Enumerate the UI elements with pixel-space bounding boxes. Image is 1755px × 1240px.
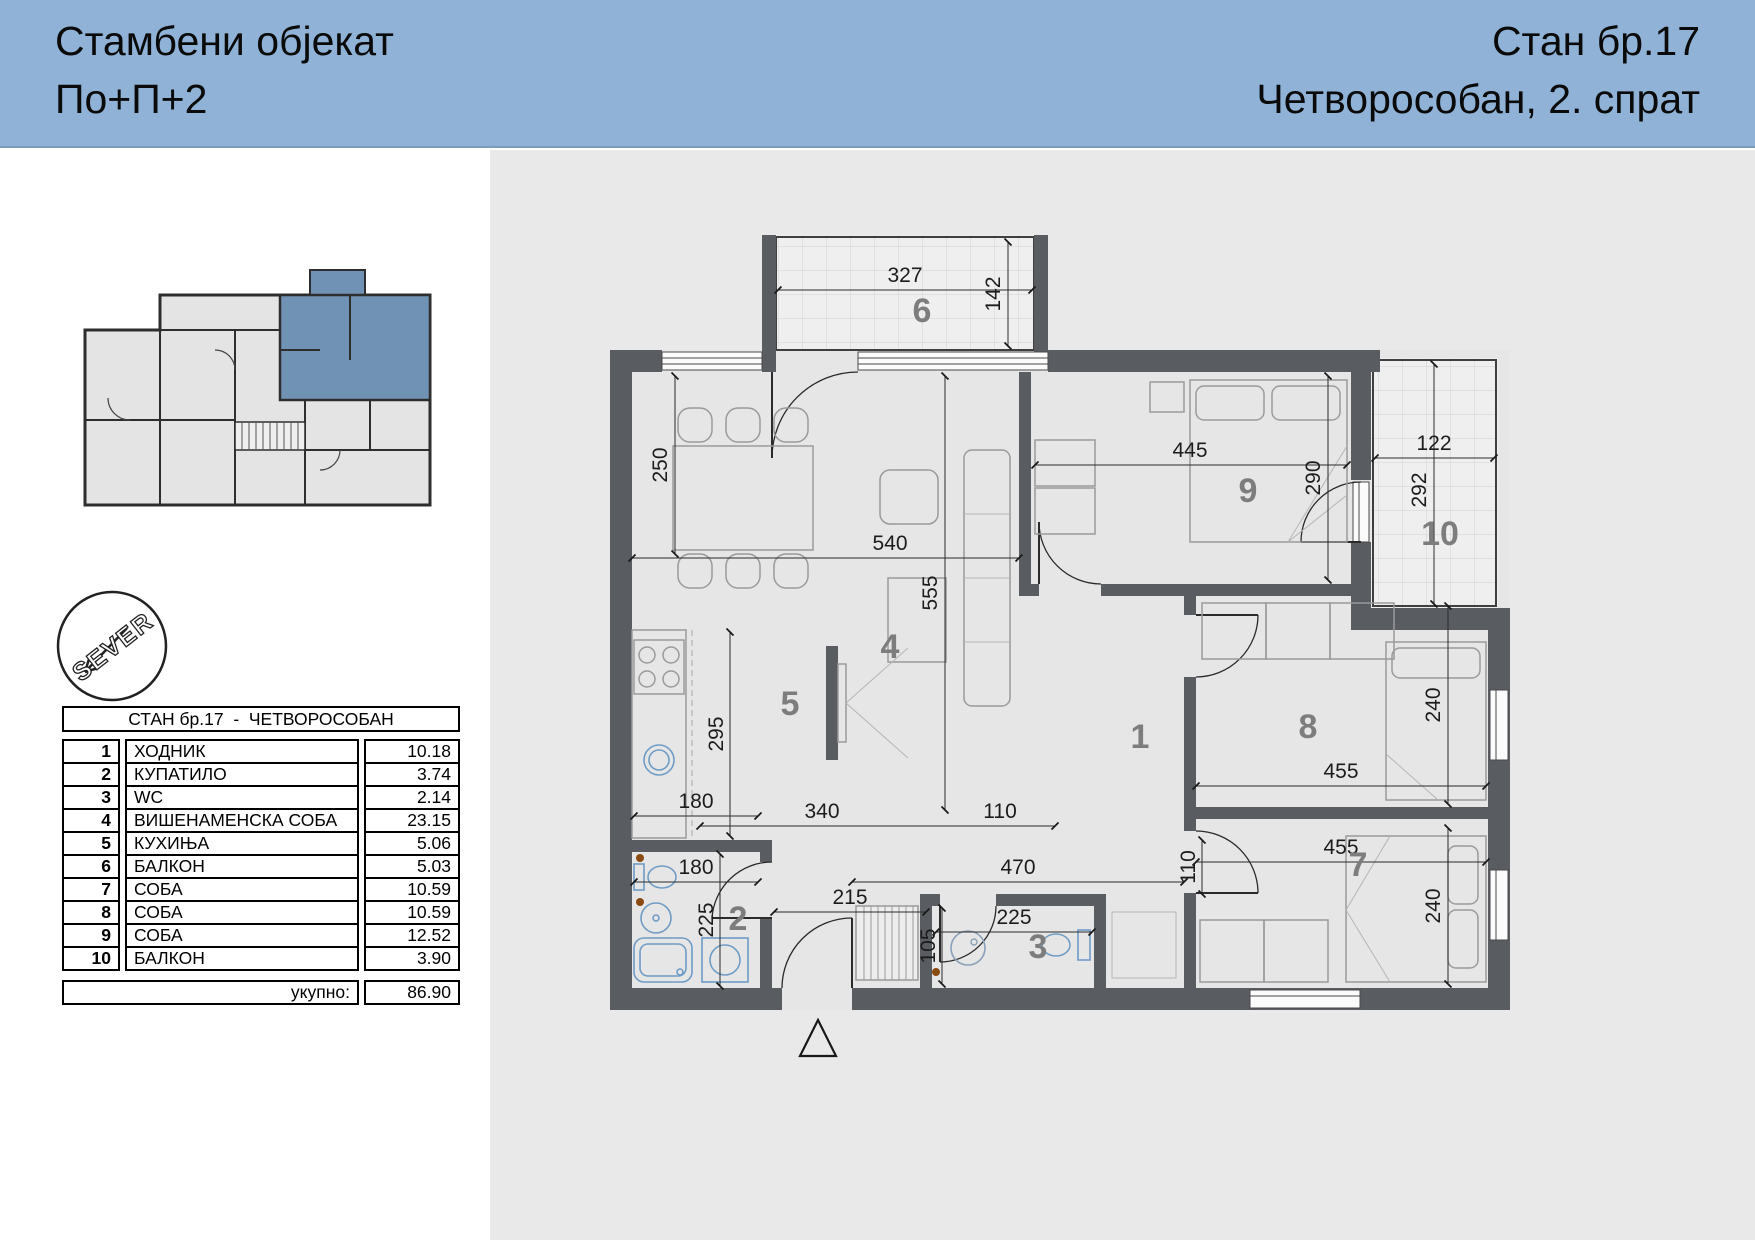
row-number: 5 — [62, 831, 120, 856]
room-name: ВИШЕНАМЕНСКА СОБА — [125, 808, 359, 833]
row-number: 2 — [62, 762, 120, 787]
door-stop-dot — [636, 854, 644, 862]
floor-plan: 3271425402504452901222925552951803401104… — [490, 150, 1755, 1240]
dimension-label: 240 — [1422, 888, 1445, 923]
room-number-label: 9 — [1239, 472, 1258, 510]
room-number-label: 3 — [1029, 928, 1048, 966]
dimension-label: 110 — [983, 800, 1016, 823]
dimension-label: 250 — [649, 447, 672, 482]
dimension-label: 292 — [1408, 472, 1431, 507]
total-value: 86.90 — [364, 980, 460, 1005]
dimension-label: 180 — [678, 856, 713, 879]
room-number-label: 10 — [1421, 515, 1459, 553]
dimension-label: 105 — [917, 928, 940, 963]
dimension-label: 290 — [1302, 460, 1325, 495]
row-number: 4 — [62, 808, 120, 833]
room-area: 3.74 — [364, 762, 460, 787]
apartment-title: Стан бр.17 Четворособан, 2. спрат — [1256, 12, 1700, 146]
dimension-label: 540 — [872, 532, 907, 555]
room-name: БАЛКОН — [125, 946, 359, 971]
dimension-label: 470 — [1000, 856, 1035, 879]
table-row: 10БАЛКОН3.90 — [62, 946, 460, 971]
room-area: 10.59 — [364, 900, 460, 925]
title-bar: Стамбени објекат По+П+2 Стан бр.17 Четво… — [0, 0, 1755, 148]
room-name: ХОДНИК — [125, 739, 359, 764]
room-area: 3.90 — [364, 946, 460, 971]
apartment-number: Стан бр.17 — [1256, 12, 1700, 70]
table-row: 3WC2.14 — [62, 785, 460, 810]
room-number-label: 5 — [781, 685, 800, 723]
dimension-label: 225 — [695, 902, 718, 937]
row-number: 8 — [62, 900, 120, 925]
dimension-label: 327 — [887, 264, 922, 287]
stamp-text: SEVER — [67, 607, 159, 687]
table-row: 6БАЛКОН5.03 — [62, 854, 460, 879]
room-area: 10.18 — [364, 739, 460, 764]
room-area: 10.59 — [364, 877, 460, 902]
dimension-label: 455 — [1323, 760, 1358, 783]
dimension-label: 110 — [1177, 850, 1200, 883]
room-number-label: 1 — [1131, 718, 1150, 756]
dimension-label: 142 — [982, 276, 1005, 311]
key-plan — [30, 190, 450, 520]
room-number-label: 4 — [881, 628, 900, 666]
table-row: 5КУХИЊА5.06 — [62, 831, 460, 856]
table-row: 4ВИШЕНАМЕНСКА СОБА23.15 — [62, 808, 460, 833]
area-table-rows: 1ХОДНИК10.182КУПАТИЛО3.743WC2.144ВИШЕНАМ… — [62, 739, 460, 971]
area-table-total-row: укупно: 86.90 — [62, 980, 460, 1005]
area-table: СТАН бр.17 - ЧЕТВОРОСОБАН 1ХОДНИК10.182К… — [62, 706, 460, 1005]
room-number-label: 8 — [1299, 708, 1318, 746]
room-area: 12.52 — [364, 923, 460, 948]
plan-sheet: Стамбени објекат По+П+2 Стан бр.17 Четво… — [0, 0, 1755, 1240]
building-title: Стамбени објекат По+П+2 — [55, 12, 394, 146]
room-name: КУХИЊА — [125, 831, 359, 856]
room-area: 2.14 — [364, 785, 460, 810]
dimension-label: 225 — [996, 906, 1031, 929]
dimension-label: 240 — [1422, 687, 1445, 722]
table-row: 7СОБА10.59 — [62, 877, 460, 902]
table-row: 8СОБА10.59 — [62, 900, 460, 925]
dimension-label: 445 — [1172, 439, 1207, 462]
row-number: 9 — [62, 923, 120, 948]
room-name: КУПАТИЛО — [125, 762, 359, 787]
row-number: 3 — [62, 785, 120, 810]
row-number: 10 — [62, 946, 120, 971]
room-number-label: 2 — [729, 900, 748, 938]
dimension-label: 122 — [1416, 432, 1451, 455]
row-number: 1 — [62, 739, 120, 764]
dimension-label: 180 — [678, 790, 713, 813]
area-table-title: СТАН бр.17 - ЧЕТВОРОСОБАН — [62, 706, 460, 732]
apartment-type-floor: Четворособан, 2. спрат — [1256, 70, 1700, 128]
north-stamp: SEVER — [52, 586, 172, 706]
door-stop-dot — [932, 968, 940, 976]
room-name: WC — [125, 785, 359, 810]
room-name: СОБА — [125, 877, 359, 902]
room-name: СОБА — [125, 900, 359, 925]
row-number: 7 — [62, 877, 120, 902]
room-number-label: 6 — [913, 292, 932, 330]
total-label: укупно: — [62, 980, 359, 1005]
room-number-label: 7 — [1349, 846, 1368, 884]
table-row: 1ХОДНИК10.18 — [62, 739, 460, 764]
table-row: 2КУПАТИЛО3.74 — [62, 762, 460, 787]
row-number: 6 — [62, 854, 120, 879]
building-title-line2: По+П+2 — [55, 70, 394, 128]
dimension-label: 295 — [705, 716, 728, 751]
room-area: 5.06 — [364, 831, 460, 856]
dimension-label: 555 — [919, 575, 942, 610]
key-plan-highlighted-unit — [280, 270, 430, 400]
room-name: СОБА — [125, 923, 359, 948]
key-plan-stairs — [235, 422, 305, 450]
dimension-label: 215 — [832, 886, 867, 909]
table-row: 9СОБА12.52 — [62, 923, 460, 948]
balcony-6-floor — [762, 235, 1048, 350]
room-area: 23.15 — [364, 808, 460, 833]
shaft-hatch — [856, 906, 918, 980]
room-area: 5.03 — [364, 854, 460, 879]
dimension-label: 340 — [804, 800, 839, 823]
door-stop-dot — [636, 898, 644, 906]
room-name: БАЛКОН — [125, 854, 359, 879]
entrance-triangle-icon — [800, 1020, 836, 1056]
building-title-line1: Стамбени објекат — [55, 12, 394, 70]
